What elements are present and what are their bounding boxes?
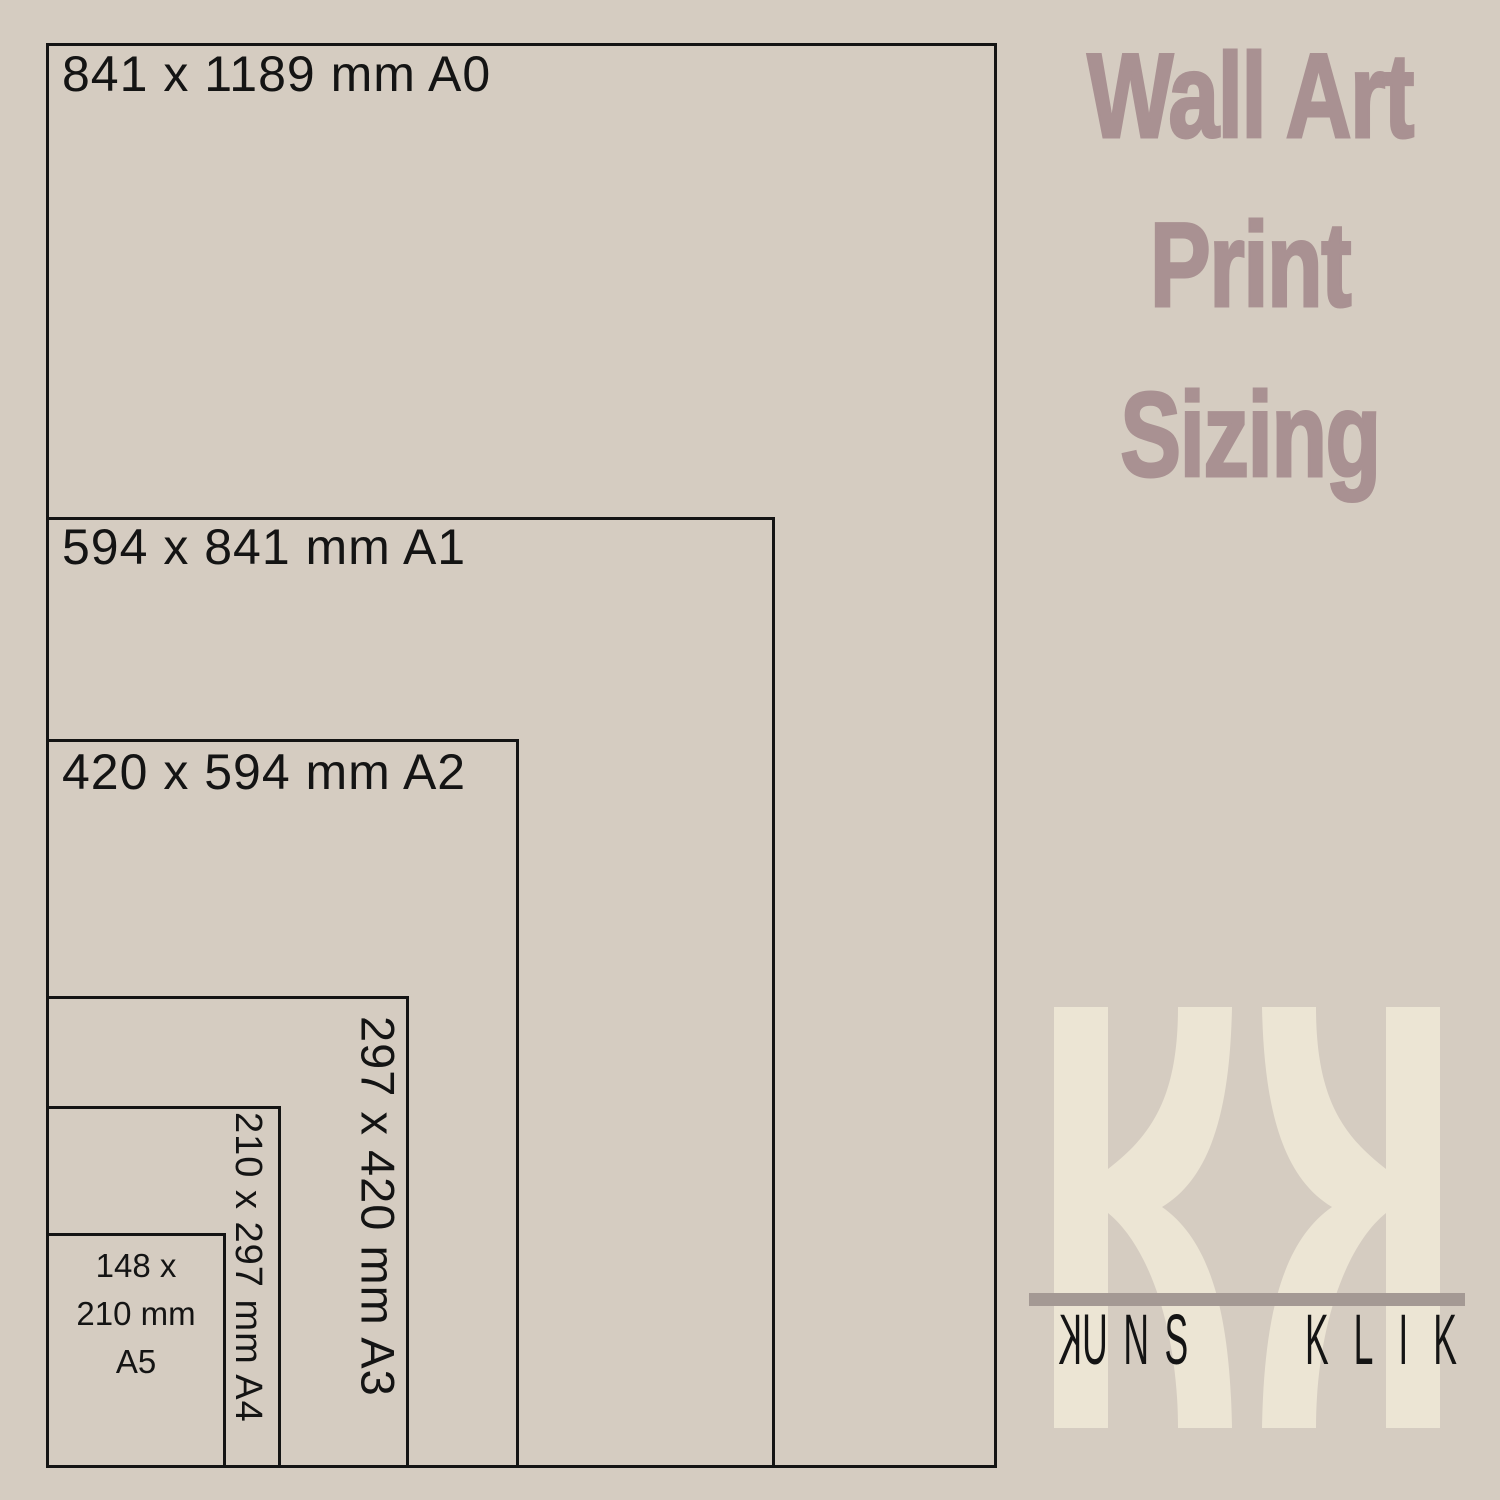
brand-wordmark-kuns: KUNS: [1043, 1305, 1204, 1376]
size-label-a2: 420 x 594 mm A2: [62, 747, 466, 797]
size-label-a4: 210 x 297 mm A4: [226, 1112, 268, 1423]
page-title-line-1: Wall Art: [1060, 36, 1440, 156]
size-label-a1: 594 x 841 mm A1: [62, 522, 466, 572]
wall-art-print-sizing-infographic: 841 x 1189 mm A0 594 x 841 mm A1 420 x 5…: [0, 0, 1500, 1500]
mirrored-k-letter: K: [1043, 1305, 1082, 1376]
size-label-a3: 297 x 420 mm A3: [352, 1016, 404, 1397]
size-label-a5-line3: A5: [46, 1338, 226, 1386]
size-label-a0: 841 x 1189 mm A0: [62, 49, 491, 99]
page-title-line-3: Sizing: [1060, 375, 1440, 495]
page-title-line-2: Print: [1060, 205, 1440, 325]
brand-wordmark-klik: KLIK: [1305, 1305, 1482, 1376]
size-label-a5-line2: 210 mm: [46, 1290, 226, 1338]
size-label-a5-line1: 148 x: [46, 1242, 226, 1290]
wordmark-kuns-rest: UNS: [1082, 1301, 1203, 1380]
size-label-a5: 148 x 210 mm A5: [46, 1242, 226, 1386]
